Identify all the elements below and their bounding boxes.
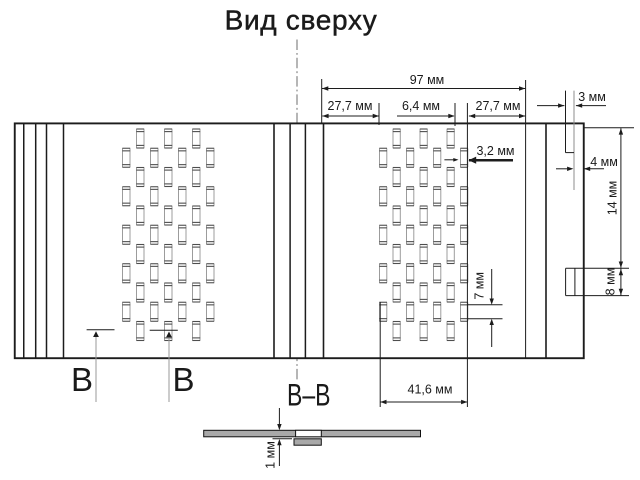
svg-text:1 мм: 1 мм [264, 441, 278, 469]
svg-text:В: В [173, 361, 195, 398]
svg-text:6,4 мм: 6,4 мм [402, 99, 440, 113]
svg-text:14 мм: 14 мм [606, 181, 620, 216]
svg-text:27,7 мм: 27,7 мм [328, 99, 373, 113]
svg-text:7 мм: 7 мм [473, 272, 487, 300]
svg-text:3 мм: 3 мм [578, 90, 606, 104]
svg-text:В–В: В–В [287, 376, 331, 412]
svg-text:41,6 мм: 41,6 мм [408, 382, 453, 396]
svg-text:27,7 мм: 27,7 мм [476, 99, 521, 113]
svg-text:Вид сверху: Вид сверху [225, 5, 378, 36]
svg-text:В: В [71, 361, 93, 398]
svg-text:3,2 мм: 3,2 мм [476, 144, 514, 158]
svg-text:97 мм: 97 мм [410, 73, 445, 87]
svg-text:4 мм: 4 мм [590, 155, 618, 169]
svg-text:8 мм: 8 мм [604, 268, 618, 296]
